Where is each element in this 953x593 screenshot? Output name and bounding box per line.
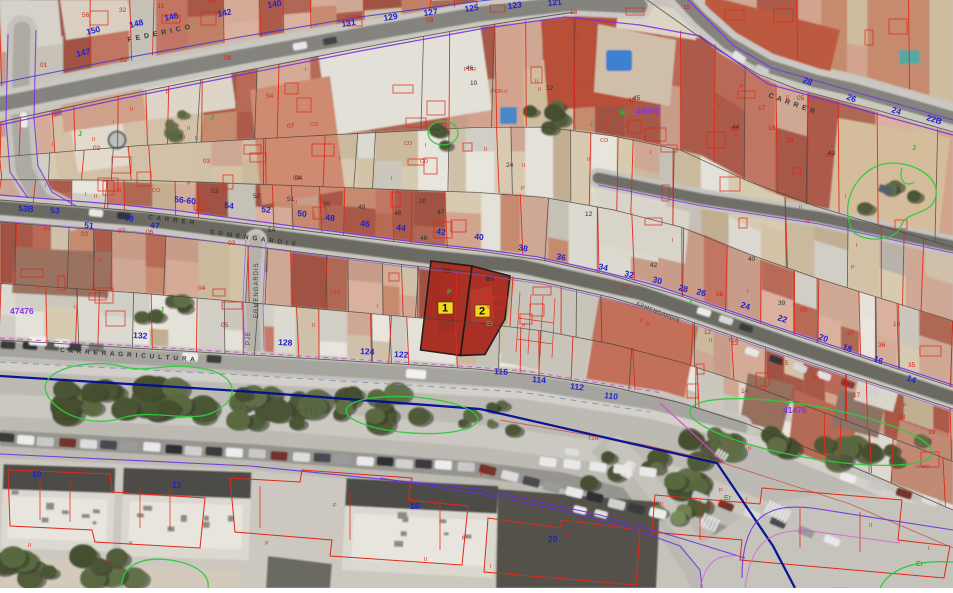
svg-text:18: 18: [410, 501, 420, 511]
svg-text:125: 125: [464, 2, 480, 14]
svg-text:36: 36: [878, 342, 886, 349]
svg-text:II: II: [535, 79, 539, 85]
svg-text:19: 19: [928, 429, 936, 436]
svg-text:42: 42: [650, 262, 658, 269]
svg-text:P: P: [740, 84, 744, 90]
svg-text:49: 49: [358, 204, 366, 211]
svg-text:18: 18: [898, 414, 906, 421]
svg-text:01: 01: [44, 225, 52, 232]
svg-text:II: II: [187, 126, 191, 132]
svg-text:13: 13: [570, 9, 578, 16]
svg-text:02: 02: [93, 145, 101, 152]
svg-text:P: P: [719, 488, 723, 494]
svg-text:54: 54: [266, 93, 274, 100]
svg-text:II: II: [748, 446, 752, 452]
svg-text:II: II: [587, 157, 591, 163]
svg-text:P: P: [903, 403, 907, 409]
svg-text:07: 07: [118, 228, 126, 235]
svg-text:II: II: [28, 543, 32, 549]
svg-text:08: 08: [224, 55, 232, 62]
svg-text:CO: CO: [152, 188, 161, 194]
svg-text:10: 10: [419, 198, 427, 205]
svg-text:45: 45: [633, 95, 641, 102]
svg-text:P: P: [166, 90, 170, 96]
svg-text:P: P: [640, 318, 644, 324]
svg-text:116: 116: [494, 366, 509, 377]
svg-text:II: II: [522, 323, 526, 329]
svg-text:19: 19: [786, 137, 794, 144]
svg-text:20: 20: [548, 534, 558, 544]
svg-text:10: 10: [32, 469, 42, 479]
svg-text:II: II: [517, 549, 521, 555]
svg-text:02: 02: [81, 231, 89, 238]
svg-text:124: 124: [360, 346, 375, 357]
svg-text:suelo: suelo: [916, 464, 929, 470]
svg-text:TZA: TZA: [722, 439, 733, 445]
svg-text:35: 35: [908, 362, 916, 369]
svg-text:53: 53: [50, 205, 60, 216]
svg-text:51: 51: [287, 196, 295, 203]
svg-text:II: II: [55, 574, 59, 580]
svg-text:04: 04: [198, 285, 206, 292]
svg-text:114: 114: [532, 374, 547, 385]
svg-text:P: P: [577, 33, 581, 39]
svg-text:ERMENGARDIS: ERMENGARDIS: [254, 262, 260, 318]
svg-text:51: 51: [84, 220, 95, 231]
svg-text:J: J: [912, 145, 916, 152]
svg-text:123: 123: [507, 0, 523, 11]
svg-text:43: 43: [828, 150, 836, 157]
svg-text:52: 52: [261, 204, 272, 215]
svg-text:17: 17: [853, 392, 861, 399]
svg-text:J: J: [589, 121, 593, 128]
svg-text:39: 39: [778, 300, 786, 307]
svg-text:P: P: [106, 559, 110, 565]
svg-text:132: 132: [133, 330, 148, 341]
svg-text:47476: 47476: [10, 306, 34, 316]
svg-text:37: 37: [847, 330, 855, 337]
svg-text:53B: 53B: [18, 203, 34, 214]
svg-text:110: 110: [604, 390, 619, 402]
svg-text:II: II: [195, 136, 199, 142]
svg-text:II: II: [566, 531, 570, 537]
svg-text:53: 53: [211, 188, 219, 195]
svg-text:54: 54: [224, 200, 235, 211]
svg-text:II: II: [118, 188, 122, 194]
svg-text:P: P: [98, 258, 102, 264]
svg-text:44: 44: [732, 124, 740, 131]
svg-text:56: 56: [82, 12, 90, 19]
svg-text:POR+I: POR+I: [491, 89, 508, 95]
svg-text:J: J: [160, 307, 164, 314]
svg-text:P: P: [333, 503, 337, 509]
svg-text:POR: POR: [464, 67, 476, 73]
svg-text:48: 48: [420, 235, 428, 242]
svg-text:P: P: [187, 181, 191, 187]
svg-text:48470: 48470: [636, 106, 660, 116]
svg-text:CO: CO: [600, 138, 609, 144]
svg-text:II: II: [583, 85, 587, 91]
svg-text:32: 32: [119, 7, 127, 14]
svg-text:Er: Er: [724, 495, 732, 502]
svg-text:18: 18: [768, 125, 776, 132]
svg-text:24: 24: [506, 162, 514, 169]
svg-text:40: 40: [474, 231, 485, 242]
svg-text:II: II: [869, 523, 873, 529]
svg-text:09: 09: [426, 17, 434, 24]
svg-text:46: 46: [360, 218, 371, 229]
svg-text:Er: Er: [620, 110, 628, 117]
svg-text:17: 17: [758, 105, 766, 112]
svg-text:14: 14: [741, 388, 749, 395]
svg-text:II: II: [709, 338, 713, 344]
svg-text:50: 50: [323, 201, 331, 208]
svg-text:50: 50: [297, 208, 308, 219]
svg-text:03: 03: [203, 158, 211, 165]
svg-text:P: P: [625, 124, 629, 130]
svg-text:II: II: [660, 502, 664, 508]
svg-text:12: 12: [704, 329, 712, 336]
svg-text:TZA: TZA: [728, 338, 739, 344]
svg-text:09: 09: [800, 307, 808, 314]
svg-text:2: 2: [479, 306, 485, 318]
svg-text:01: 01: [40, 62, 48, 69]
svg-text:II: II: [484, 147, 488, 153]
svg-text:12: 12: [546, 85, 554, 92]
svg-text:12: 12: [172, 480, 182, 490]
svg-text:II: II: [294, 200, 298, 206]
svg-text:II: II: [94, 194, 98, 200]
svg-text:II: II: [92, 137, 96, 143]
svg-text:07: 07: [287, 123, 295, 130]
svg-text:112: 112: [570, 381, 585, 392]
svg-text:II: II: [312, 323, 316, 329]
svg-text:15: 15: [683, 4, 691, 11]
svg-text:P: P: [851, 265, 855, 271]
svg-text:16: 16: [812, 374, 820, 381]
svg-text:II: II: [522, 163, 526, 169]
svg-text:54: 54: [268, 227, 276, 234]
svg-text:P: P: [718, 103, 722, 109]
svg-text:II: II: [538, 87, 542, 93]
svg-text:P: P: [521, 186, 525, 192]
svg-text:J: J: [78, 131, 82, 138]
svg-text:30: 30: [208, 0, 216, 5]
svg-text:II: II: [480, 472, 484, 478]
svg-text:II: II: [130, 107, 134, 113]
svg-text:CO: CO: [404, 141, 413, 147]
svg-text:41476: 41476: [783, 405, 807, 415]
svg-text:CO: CO: [420, 159, 429, 165]
svg-text:CO: CO: [310, 122, 319, 128]
svg-text:15: 15: [781, 360, 789, 367]
svg-text:42: 42: [436, 226, 447, 237]
svg-text:05: 05: [797, 95, 805, 102]
svg-text:1: 1: [442, 303, 448, 315]
svg-text:II: II: [36, 286, 40, 292]
svg-text:38: 38: [518, 242, 529, 254]
svg-text:48: 48: [394, 210, 402, 217]
svg-text:TZA: TZA: [330, 290, 341, 296]
svg-text:02: 02: [120, 57, 128, 64]
svg-text:II: II: [799, 205, 803, 211]
svg-text:122: 122: [394, 349, 409, 360]
svg-text:47: 47: [437, 209, 445, 216]
svg-text:Er: Er: [916, 561, 924, 568]
svg-text:P: P: [603, 126, 607, 132]
svg-text:31: 31: [157, 3, 165, 10]
svg-text:P: P: [265, 541, 269, 547]
svg-text:128: 128: [278, 337, 293, 348]
svg-text:PJE: PJE: [246, 331, 252, 345]
svg-text:52: 52: [253, 193, 261, 200]
svg-text:P: P: [447, 289, 452, 296]
svg-text:06: 06: [146, 229, 154, 236]
svg-text:Er: Er: [486, 321, 494, 328]
svg-text:J: J: [688, 299, 692, 306]
svg-text:40: 40: [748, 256, 756, 263]
svg-text:04: 04: [295, 175, 303, 182]
svg-text:12: 12: [585, 211, 593, 218]
svg-text:49: 49: [124, 213, 135, 224]
svg-text:07: 07: [622, 285, 630, 292]
svg-text:TZA: TZA: [588, 436, 599, 442]
svg-text:II: II: [708, 504, 712, 510]
svg-text:II: II: [235, 104, 239, 110]
svg-text:48: 48: [325, 212, 336, 223]
svg-text:08: 08: [716, 291, 724, 298]
svg-text:P: P: [606, 117, 610, 123]
svg-text:10: 10: [470, 80, 478, 87]
svg-text:10: 10: [893, 321, 901, 328]
svg-text:05: 05: [221, 322, 229, 329]
svg-text:P: P: [646, 322, 650, 328]
svg-text:J: J: [210, 115, 214, 122]
svg-text:44: 44: [396, 222, 407, 233]
svg-text:03: 03: [228, 240, 236, 247]
